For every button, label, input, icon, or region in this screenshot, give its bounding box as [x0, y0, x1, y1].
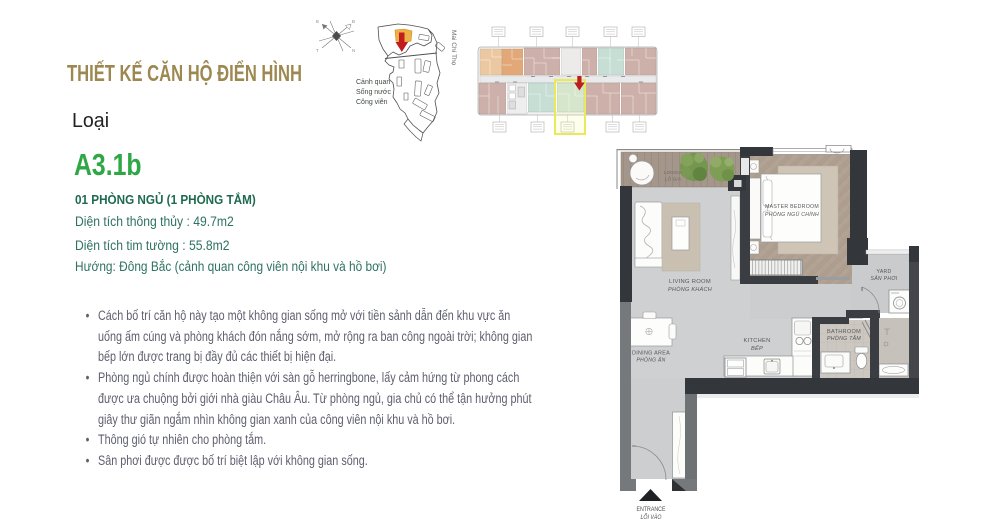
- svg-text:MASTER BEDROOM: MASTER BEDROOM: [765, 204, 819, 210]
- svg-text:Mai Chí Thọ: Mai Chí Thọ: [450, 30, 457, 66]
- svg-text:LỐI VÀO: LỐI VÀO: [641, 514, 662, 521]
- svg-text:N: N: [352, 48, 355, 53]
- svg-text:Cảnh quan: Cảnh quan: [356, 79, 390, 86]
- svg-text:T: T: [316, 48, 319, 53]
- svg-text:BATHROOM: BATHROOM: [827, 329, 861, 335]
- svg-text:Sống nước: Sống nước: [356, 87, 391, 96]
- svg-text:LOGGIA: LOGGIA: [664, 170, 682, 176]
- svg-text:PHÒNG NGỦ CHÍNH: PHÒNG NGỦ CHÍNH: [765, 211, 820, 218]
- svg-text:LIVING ROOM: LIVING ROOM: [669, 279, 711, 285]
- svg-text:BẾP: BẾP: [751, 344, 763, 352]
- svg-text:Đ: Đ: [352, 19, 355, 24]
- svg-text:LÔ GIA: LÔ GIA: [665, 176, 681, 183]
- svg-text:PHÒNG TẮM: PHÒNG TẮM: [827, 334, 861, 342]
- svg-text:B: B: [316, 19, 319, 24]
- svg-text:PHÒNG ĂN: PHÒNG ĂN: [637, 357, 666, 364]
- svg-text:ENTRANCE: ENTRANCE: [637, 507, 666, 513]
- svg-text:DINING AREA: DINING AREA: [632, 351, 670, 357]
- svg-text:SÂN PHƠI: SÂN PHƠI: [871, 275, 898, 282]
- svg-text:PHÒNG KHÁCH: PHÒNG KHÁCH: [668, 286, 712, 293]
- svg-text:Công viên: Công viên: [356, 99, 388, 106]
- svg-text:YARD: YARD: [877, 269, 892, 275]
- svg-text:KITCHEN: KITCHEN: [744, 338, 771, 344]
